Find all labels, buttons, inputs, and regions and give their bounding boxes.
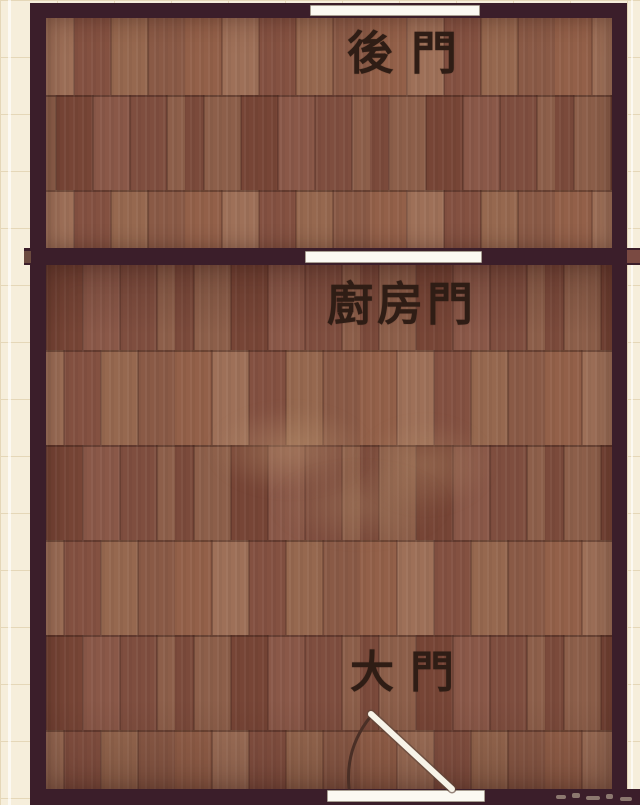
watermark-speck	[556, 795, 566, 799]
watermark-speck	[572, 793, 580, 798]
main-room-floor	[46, 265, 612, 789]
watermark-speck	[586, 796, 600, 800]
main-door-label: 大門	[350, 651, 470, 695]
watermark-speck	[620, 797, 632, 801]
main-door-opening	[327, 790, 485, 802]
kitchen-door-opening	[305, 251, 482, 263]
wall-middle-right-stub	[627, 250, 640, 263]
wall-right	[612, 3, 627, 805]
floor-plan: 後門 廚房門 大門	[0, 0, 640, 805]
back-door-label: 後門	[347, 30, 475, 76]
kitchen-door-label: 廚房門	[327, 281, 477, 327]
back-room-floor	[46, 18, 612, 248]
wood-floor-texture	[0, 0, 640, 805]
wall-left	[30, 3, 46, 805]
back-door-opening	[310, 5, 480, 16]
wall-middle-left-stub	[24, 251, 31, 263]
watermark-speck	[606, 794, 613, 799]
